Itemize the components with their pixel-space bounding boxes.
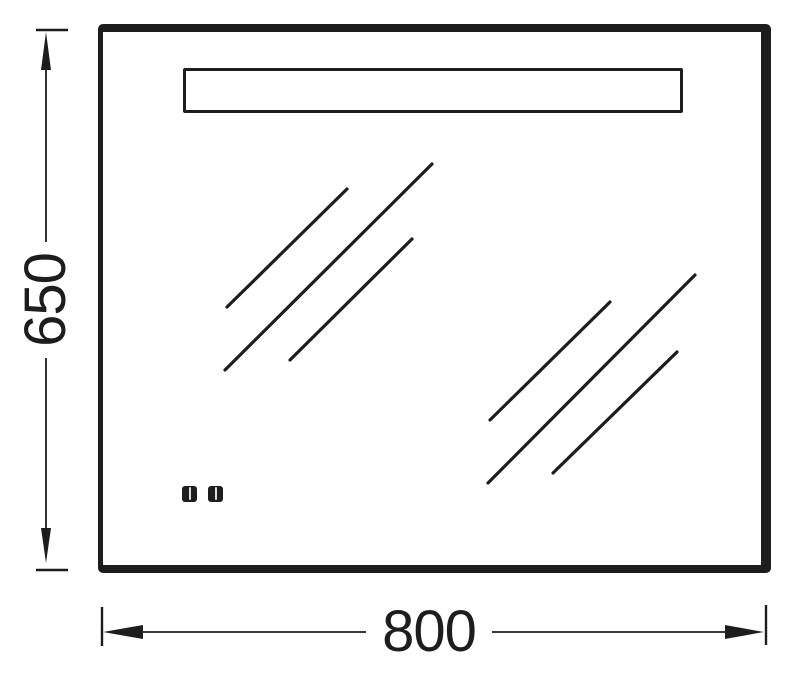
sensor-button [208,486,223,502]
height-dimension-label: 650 [17,253,75,347]
sensor-button [182,486,197,502]
light-strip [183,68,683,113]
arrow-left-icon [103,625,143,639]
sensor-button-slit [215,487,217,500]
width-dimension-label: 800 [382,603,476,661]
arrow-right-icon [725,625,764,639]
arrow-up-icon [41,32,51,70]
sensor-button-slit [189,487,191,500]
technical-drawing-canvas: 650 800 [0,0,800,679]
arrow-down-icon [41,528,51,563]
